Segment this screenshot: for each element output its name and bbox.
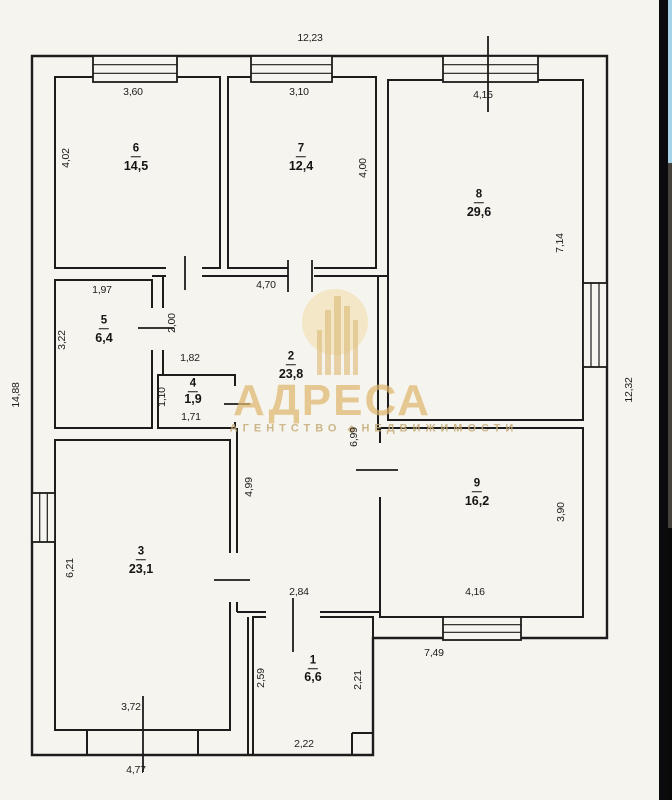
dim-room-3-left: 6,21 — [65, 558, 76, 578]
dim-room-8-right: 7,14 — [555, 233, 566, 253]
dim-room-4-left: 1,10 — [157, 387, 168, 407]
next-photo-sliver-sky — [668, 0, 672, 163]
dim-room-8-top: 4,15 — [473, 90, 493, 101]
agency-watermark-subtitle: АГЕНТСТВО НЕДВИЖИМОСТИ — [230, 424, 519, 435]
room-3-number: 3 — [136, 546, 146, 560]
window-left — [32, 493, 55, 542]
room-3-area: 23,1 — [129, 563, 153, 576]
agency-watermark-brand: АДРЕСА — [233, 379, 431, 423]
room-7-number: 7 — [296, 143, 306, 157]
room-2-area: 23,8 — [279, 368, 303, 381]
room-5-number: 5 — [99, 315, 109, 329]
dim-room-2-top: 4,70 — [256, 280, 276, 291]
dim-exterior-top: 12,23 — [297, 33, 322, 44]
dim-room-7-right: 4,00 — [358, 158, 369, 178]
dim-room-2-left: 4,99 — [244, 477, 255, 497]
dim-room-5-top: 1,97 — [92, 285, 112, 296]
dim-room-1-left: 2,59 — [256, 668, 267, 688]
agency-watermark-subtitle-word2: НЕДВИЖИМОСТИ — [361, 424, 518, 435]
room-9-number: 9 — [472, 478, 482, 492]
dim-room-5-left: 3,22 — [57, 330, 68, 350]
next-photo-sliver-building — [668, 163, 672, 528]
agency-logo-icon — [302, 289, 368, 375]
dim-room-2-right: 6,99 — [349, 427, 360, 447]
dim-room-3-bottom: 3,72 — [121, 702, 141, 713]
dim-room-6-left: 4,02 — [61, 148, 72, 168]
window-top-2 — [251, 56, 332, 82]
dim-exterior-right: 12,32 — [624, 377, 635, 402]
window-top-3 — [443, 56, 538, 82]
dim-room-9-right: 3,90 — [556, 502, 567, 522]
dim-exterior-left: 14,88 — [11, 382, 22, 407]
room-6-number: 6 — [131, 143, 141, 157]
dim-room-9-bottom: 4,16 — [465, 587, 485, 598]
room-8-number: 8 — [474, 189, 484, 203]
window-top-1 — [93, 56, 177, 82]
room-2-number: 2 — [286, 351, 296, 365]
floorplan-scan: АДРЕСА АГЕНТСТВО НЕДВИЖИМОСТИ 12,23 14,8… — [0, 0, 672, 800]
room-8-area: 29,6 — [467, 206, 491, 219]
gallery-divider — [659, 0, 668, 800]
window-bottom — [443, 617, 521, 640]
room-7-area: 12,4 — [289, 160, 313, 173]
dim-room-6-top: 3,60 — [123, 87, 143, 98]
dim-room-2-door: 2,00 — [167, 313, 178, 333]
agency-watermark-subtitle-word1: АГЕНТСТВО — [230, 424, 342, 435]
room-1-area: 6,6 — [304, 671, 321, 684]
room-5-area: 6,4 — [95, 332, 112, 345]
room-9-area: 16,2 — [465, 495, 489, 508]
dim-room-7-top: 3,10 — [289, 87, 309, 98]
room-1-number: 1 — [308, 655, 318, 669]
dim-room-2-niche: 1,82 — [180, 353, 200, 364]
room-4-area: 1,9 — [184, 393, 201, 406]
dim-room-4-bottom: 1,71 — [181, 412, 201, 423]
dim-exterior-bottom-right: 7,49 — [424, 648, 444, 659]
next-photo-sliver-dark — [668, 528, 672, 800]
room-6-area: 14,5 — [124, 160, 148, 173]
dim-room-1-bottom: 2,22 — [294, 739, 314, 750]
dim-exterior-bottom-left: 4,77 — [126, 765, 146, 776]
dim-room-1-top: 2,84 — [289, 587, 309, 598]
dim-room-1-right: 2,21 — [353, 670, 364, 690]
window-right — [583, 283, 607, 367]
room-4-number: 4 — [188, 378, 198, 392]
